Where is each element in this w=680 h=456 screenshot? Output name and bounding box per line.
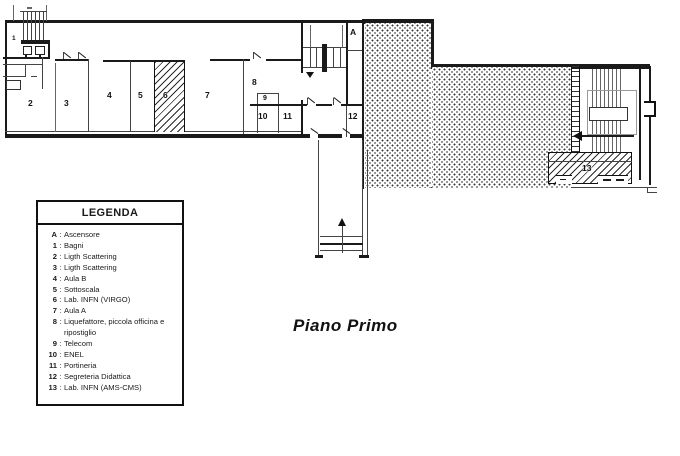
room-label-10: 10 bbox=[258, 112, 267, 121]
wall bbox=[55, 59, 88, 61]
floor-title: Piano Primo bbox=[293, 316, 398, 336]
wc-fixture bbox=[23, 46, 32, 55]
room-label-6: 6 bbox=[163, 91, 168, 100]
legend-item-9: 9:Telecom bbox=[38, 339, 182, 350]
door-swing bbox=[253, 52, 261, 58]
room-label-12: 12 bbox=[348, 112, 357, 121]
door-swing bbox=[78, 52, 86, 58]
wall bbox=[359, 255, 369, 258]
wall bbox=[639, 66, 641, 180]
wc-fixture bbox=[35, 46, 45, 55]
legend-item-12: 12:Segreteria Didattica bbox=[38, 372, 182, 383]
stair-tread bbox=[342, 25, 343, 47]
stair-landing bbox=[21, 40, 48, 44]
wall bbox=[3, 76, 26, 77]
stair-rail bbox=[46, 5, 47, 21]
wall bbox=[88, 59, 89, 132]
stair-mark bbox=[27, 7, 32, 9]
room-13-fixture bbox=[616, 179, 624, 181]
wall bbox=[318, 134, 342, 138]
stair-direction-arrow bbox=[306, 72, 314, 78]
room-label-9: 9 bbox=[263, 95, 267, 102]
legend-item-8: 8:Liquefattore, piccola officina e ripos… bbox=[38, 317, 182, 339]
legend-item-1: 1:Bagni bbox=[38, 241, 182, 252]
legend-item-11: 11:Portineria bbox=[38, 361, 182, 372]
wall bbox=[647, 192, 657, 193]
stair-tread bbox=[310, 25, 311, 47]
wall bbox=[31, 76, 37, 77]
stair-tread bbox=[39, 12, 40, 40]
legend-item-7: 7:Aula A bbox=[38, 306, 182, 317]
wall bbox=[42, 57, 43, 89]
stair-direction-arrow bbox=[342, 225, 343, 253]
wall bbox=[25, 64, 26, 77]
walkway-wall bbox=[318, 140, 319, 257]
legend-item-5: 5:Sottoscala bbox=[38, 285, 182, 296]
wall bbox=[315, 255, 323, 258]
legend-divider bbox=[38, 223, 182, 225]
exit-arrow-head bbox=[573, 131, 582, 141]
stair-tread bbox=[23, 12, 24, 40]
wall bbox=[278, 94, 279, 133]
stair-direction-arrow-head bbox=[338, 218, 346, 226]
room-label-1: 1 bbox=[12, 36, 16, 43]
door-swing bbox=[333, 97, 341, 103]
open-hall-stipple-area bbox=[365, 23, 431, 188]
door-swing bbox=[307, 98, 308, 105]
room-label-11: 11 bbox=[283, 112, 292, 121]
wall bbox=[55, 63, 56, 132]
room-6-hatched-area bbox=[154, 62, 185, 132]
wall bbox=[210, 59, 250, 61]
room-label-A: A bbox=[350, 28, 356, 37]
room-label-7: 7 bbox=[205, 91, 210, 100]
wall bbox=[346, 20, 348, 106]
wall bbox=[130, 61, 131, 132]
stair-rail bbox=[13, 5, 14, 21]
legend-item-10: 10:ENEL bbox=[38, 350, 182, 361]
legend-item-13: 13:Lab. INFN (AMS-CMS) bbox=[38, 383, 182, 394]
floor-plan-page: A 1 2 3 4 5 6 7 8 9 10 11 12 13 LEGENDA … bbox=[0, 0, 680, 456]
wall bbox=[5, 134, 310, 138]
stair-tread bbox=[310, 47, 311, 67]
wall bbox=[48, 40, 50, 59]
door-swing bbox=[307, 97, 315, 103]
stair-divider bbox=[322, 44, 327, 72]
stair-tread bbox=[340, 47, 341, 67]
legend-item-A: A:Ascensore bbox=[38, 230, 182, 241]
wall bbox=[250, 104, 307, 106]
stair-tread bbox=[316, 47, 317, 67]
wall bbox=[341, 104, 362, 106]
room-13-fixture bbox=[603, 179, 611, 181]
walkway-wall bbox=[367, 150, 368, 257]
walkway-wall bbox=[362, 140, 363, 257]
legend-item-3: 3:Ligth Scattering bbox=[38, 263, 182, 274]
room-label-13: 13 bbox=[582, 164, 591, 173]
wall bbox=[548, 161, 632, 162]
legend-title: LEGENDA bbox=[38, 207, 182, 219]
stair-tread bbox=[31, 12, 32, 40]
door-swing bbox=[310, 128, 318, 134]
wall bbox=[3, 64, 43, 65]
exit-arrow bbox=[581, 135, 634, 137]
stair-ladder-strip bbox=[571, 66, 580, 155]
wall bbox=[5, 20, 7, 138]
wc-fixture bbox=[6, 80, 21, 90]
room-label-2: 2 bbox=[28, 99, 33, 108]
room-13-fixture bbox=[560, 179, 566, 180]
room-label-4: 4 bbox=[107, 91, 112, 100]
door-swing bbox=[333, 98, 334, 105]
stair-tread bbox=[43, 12, 44, 40]
door-swing bbox=[63, 52, 71, 58]
door-recess bbox=[644, 101, 656, 117]
wall bbox=[243, 59, 244, 134]
legend-item-4: 4:Aula B bbox=[38, 274, 182, 285]
elevator-wall bbox=[347, 50, 362, 51]
stair-tread bbox=[27, 12, 28, 40]
wall bbox=[649, 66, 651, 185]
stair-tread bbox=[333, 47, 334, 67]
legend-box: LEGENDA A:Ascensore 1:Bagni 2:Ligth Scat… bbox=[36, 200, 184, 406]
wall bbox=[5, 20, 363, 23]
room-label-8: 8 bbox=[252, 78, 257, 87]
legend-item-6: 6:Lab. INFN (VIRGO) bbox=[38, 295, 182, 306]
stair-landing bbox=[589, 107, 628, 121]
stair-tread bbox=[35, 12, 36, 40]
legend-item-2: 2:Ligth Scattering bbox=[38, 252, 182, 263]
room-label-5: 5 bbox=[138, 91, 143, 100]
wall bbox=[266, 59, 302, 61]
room-label-3: 3 bbox=[64, 99, 69, 108]
wall bbox=[257, 93, 279, 94]
wall bbox=[316, 104, 332, 106]
